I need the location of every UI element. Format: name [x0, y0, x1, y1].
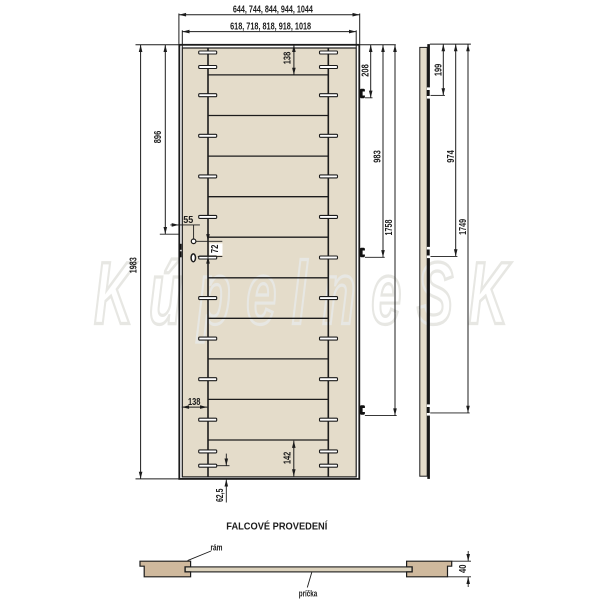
- svg-text:72: 72: [210, 244, 221, 253]
- svg-text:618, 718, 818, 918, 1018: 618, 718, 818, 918, 1018: [230, 22, 311, 33]
- svg-text:138: 138: [282, 51, 293, 64]
- svg-text:príčka: príčka: [299, 589, 318, 599]
- svg-text:138: 138: [188, 397, 201, 408]
- svg-text:KúpelneSK: KúpelneSK: [94, 244, 523, 343]
- svg-text:142: 142: [282, 451, 293, 464]
- svg-text:644, 744, 844, 944, 1044: 644, 744, 844, 944, 1044: [233, 5, 313, 16]
- svg-text:62,5: 62,5: [215, 488, 226, 502]
- svg-text:208: 208: [361, 64, 372, 77]
- svg-text:FALCOVÉ PROVEDENÍ: FALCOVÉ PROVEDENÍ: [226, 519, 328, 532]
- svg-text:40: 40: [458, 564, 469, 573]
- svg-text:1983: 1983: [128, 257, 139, 273]
- svg-text:1758: 1758: [384, 219, 395, 235]
- svg-text:983: 983: [373, 150, 384, 163]
- svg-text:199: 199: [434, 63, 445, 76]
- svg-text:896: 896: [153, 130, 164, 143]
- svg-text:1749: 1749: [458, 219, 469, 235]
- svg-text:55: 55: [183, 215, 193, 226]
- svg-text:974: 974: [446, 150, 457, 163]
- svg-text:rám: rám: [211, 543, 223, 553]
